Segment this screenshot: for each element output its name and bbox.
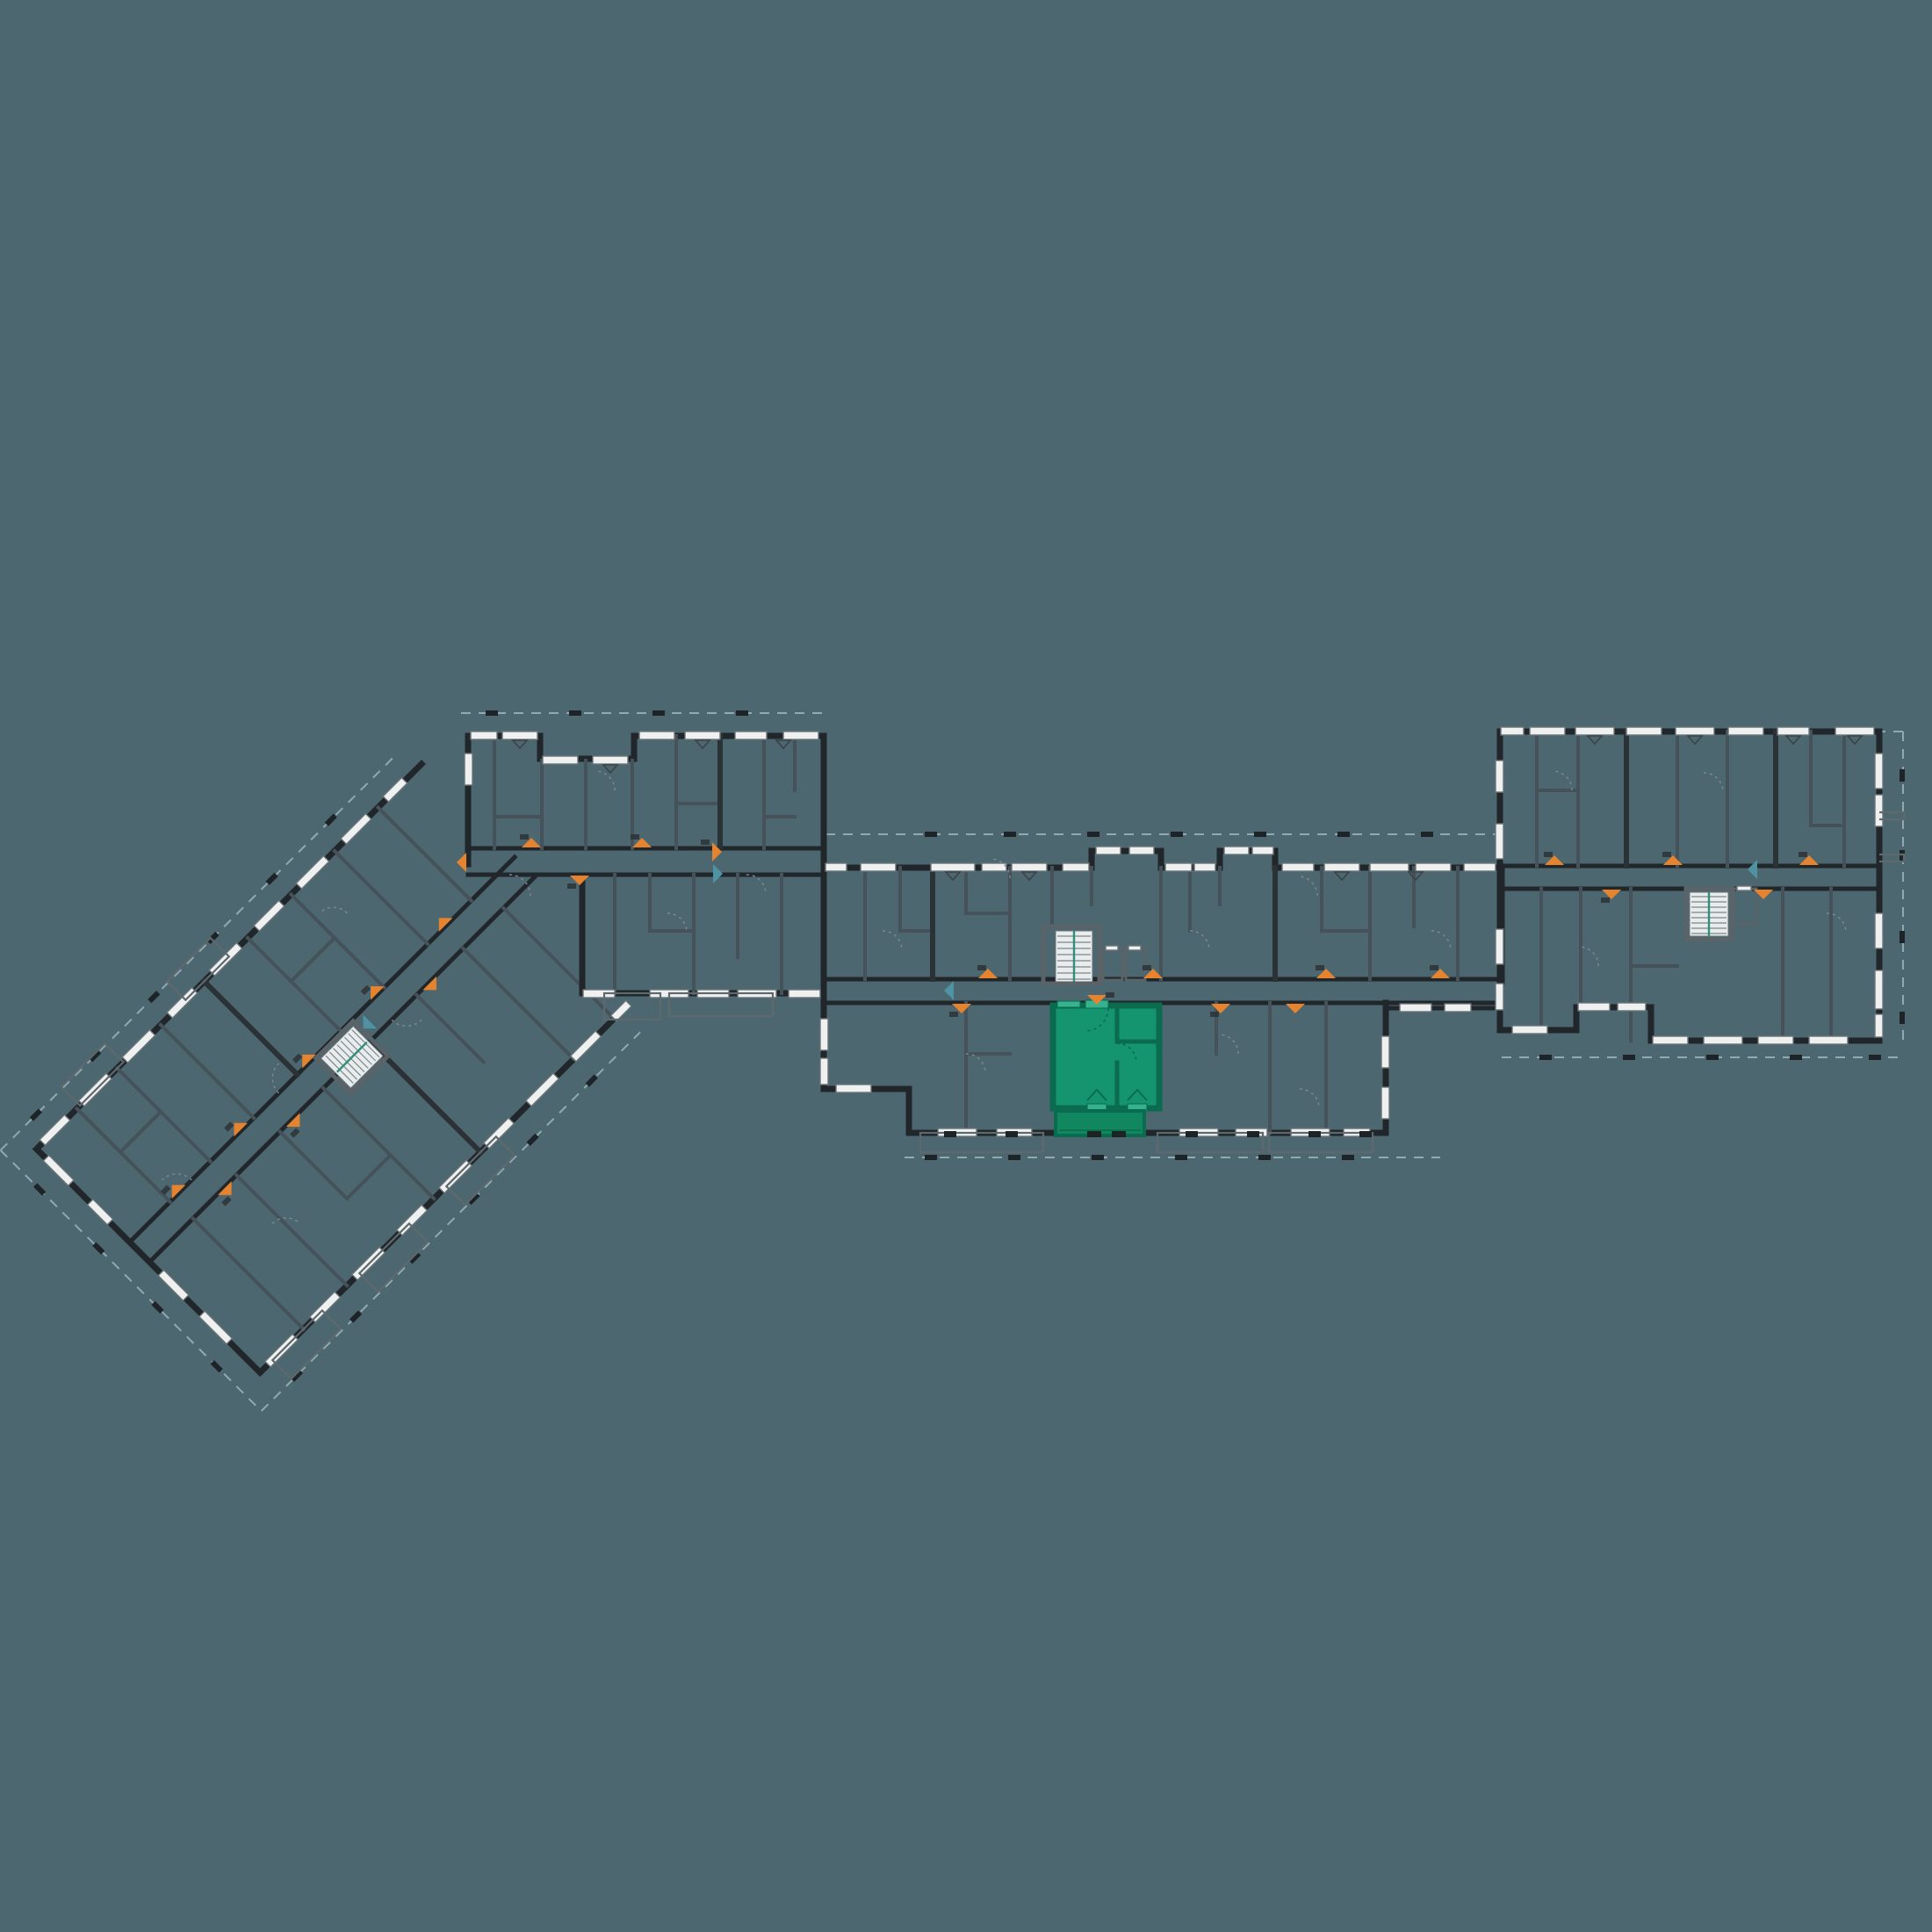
selected-apartment-balcony xyxy=(1056,1111,1144,1137)
wing-d-balconies xyxy=(1879,812,1904,861)
wing-b-windows xyxy=(465,732,820,998)
wing-b-entry-markers xyxy=(457,834,723,889)
wing-d-door-arcs xyxy=(1553,771,1846,966)
wing-c-entry-markers xyxy=(944,965,1450,1017)
selected-apartment[interactable] xyxy=(1053,992,1159,1137)
building-wing-d xyxy=(1496,727,1904,1044)
floor-plan-canvas xyxy=(0,0,1932,1932)
selected-apartment-corridor-window xyxy=(1057,1001,1080,1007)
building-wing-a xyxy=(16,746,664,1394)
selected-apartment-footprint[interactable] xyxy=(1053,1006,1159,1108)
selected-apartment-number-stamp xyxy=(1106,992,1114,998)
elevator-shafts xyxy=(1103,946,1145,980)
wing-d-staircase-icon xyxy=(1686,886,1756,940)
wing-c-door-arcs xyxy=(883,859,1451,1108)
main-staircase-icon xyxy=(1043,926,1099,984)
wing-a-entry-markers xyxy=(161,909,483,1231)
wing-d-windows xyxy=(1496,727,1883,1044)
wing-b-door-arcs xyxy=(509,771,766,933)
building-wing-b xyxy=(457,732,824,1020)
